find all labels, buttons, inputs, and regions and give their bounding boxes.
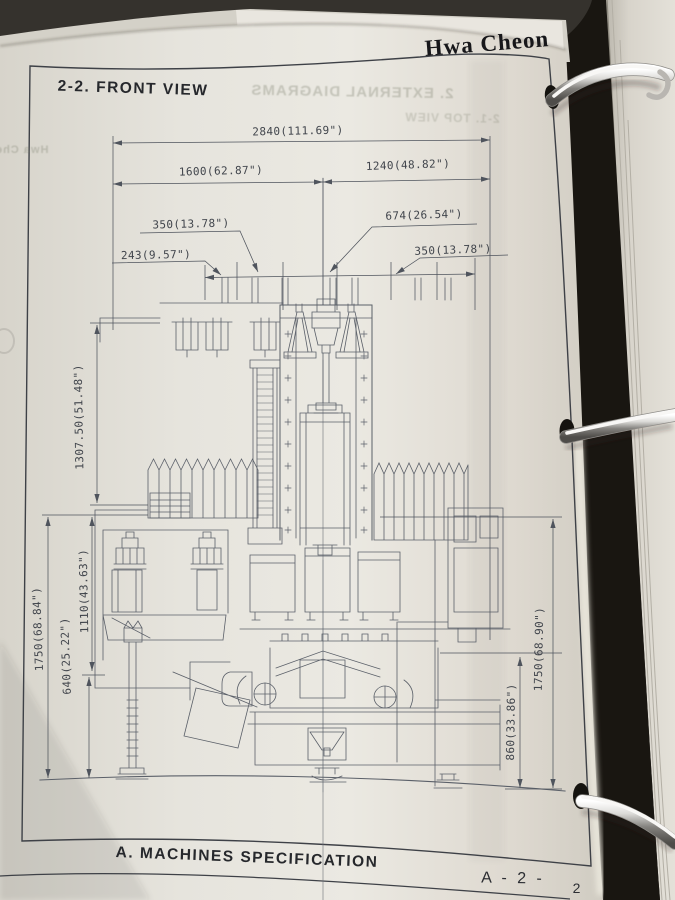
photo-of-binder-page: 2. EXTERNAL DIAGRAMS 2-1. TOP VIEW Hwa C…	[0, 0, 675, 900]
manual-page	[0, 24, 603, 900]
page-artwork	[0, 0, 675, 900]
